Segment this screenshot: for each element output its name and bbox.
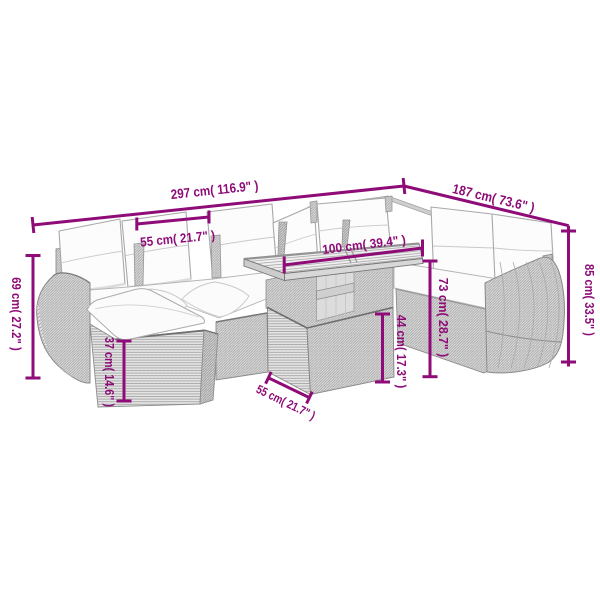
svg-text:44 cm( 17.3" ): 44 cm( 17.3" ) bbox=[394, 315, 408, 389]
svg-text:73 cm( 28.7" ): 73 cm( 28.7" ) bbox=[436, 278, 451, 357]
svg-text:37 cm( 14.6" ): 37 cm( 14.6" ) bbox=[102, 337, 116, 407]
svg-text:85 cm( 33.5" ): 85 cm( 33.5" ) bbox=[582, 264, 597, 336]
svg-text:69 cm( 27.2" ): 69 cm( 27.2" ) bbox=[9, 277, 24, 351]
